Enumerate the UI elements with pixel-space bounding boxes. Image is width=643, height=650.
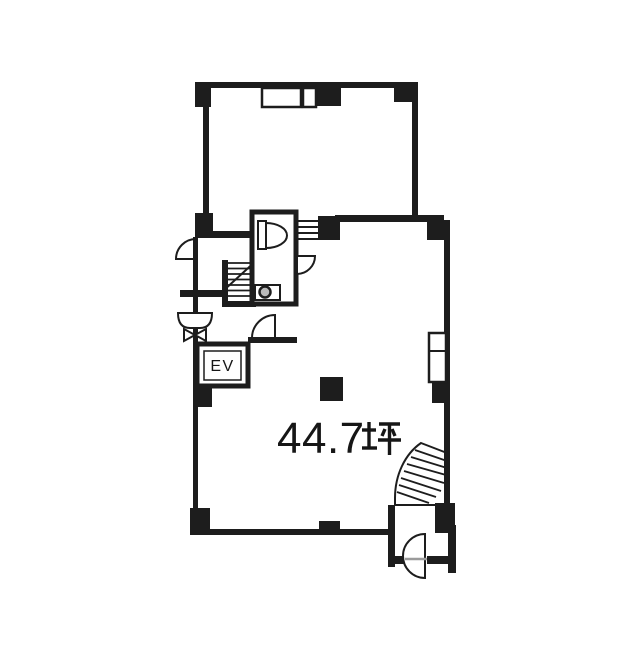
column (427, 220, 448, 240)
utility-sink-basin (260, 287, 271, 298)
column (319, 521, 340, 535)
utility-sink-icon (255, 285, 280, 300)
area-value-text: 44.7 (277, 414, 365, 463)
column (195, 82, 211, 107)
floor-plan-drawing: EV 44.7 (0, 0, 643, 650)
wall-bottom (193, 529, 391, 535)
wall-upper-right (412, 82, 418, 222)
pipe-space-box (429, 333, 446, 382)
wall-stub-left (180, 290, 228, 297)
column (320, 377, 343, 401)
column (435, 503, 455, 533)
toilet-door-swing-icon (297, 256, 315, 274)
basin-bowl (178, 313, 212, 328)
column (432, 383, 447, 403)
elevator: EV (197, 344, 248, 386)
wall-stair-side (222, 260, 228, 307)
kanji-stroke (382, 429, 385, 436)
area-label: 44.7 (277, 414, 401, 463)
pipe-space-icon (429, 333, 446, 382)
column (190, 508, 210, 535)
kanji-stroke (392, 429, 395, 436)
column (195, 213, 213, 238)
floor-plan: EV 44.7 (0, 0, 643, 650)
toilet-room (252, 212, 315, 304)
column (316, 83, 341, 106)
entrance-door-swing-icon (403, 534, 425, 578)
hall-door-swing-icon (252, 315, 275, 338)
counter-box-small (303, 88, 316, 107)
elevator-label: EV (210, 358, 234, 375)
counter-box (262, 88, 301, 107)
toilet-tank (258, 221, 266, 249)
column (394, 83, 415, 102)
counter-icon (262, 88, 316, 107)
window-hatch-icon (295, 221, 320, 239)
tsubo-kanji-glyph (362, 422, 401, 455)
winder-stairs-icon (395, 443, 447, 505)
column (318, 216, 340, 240)
